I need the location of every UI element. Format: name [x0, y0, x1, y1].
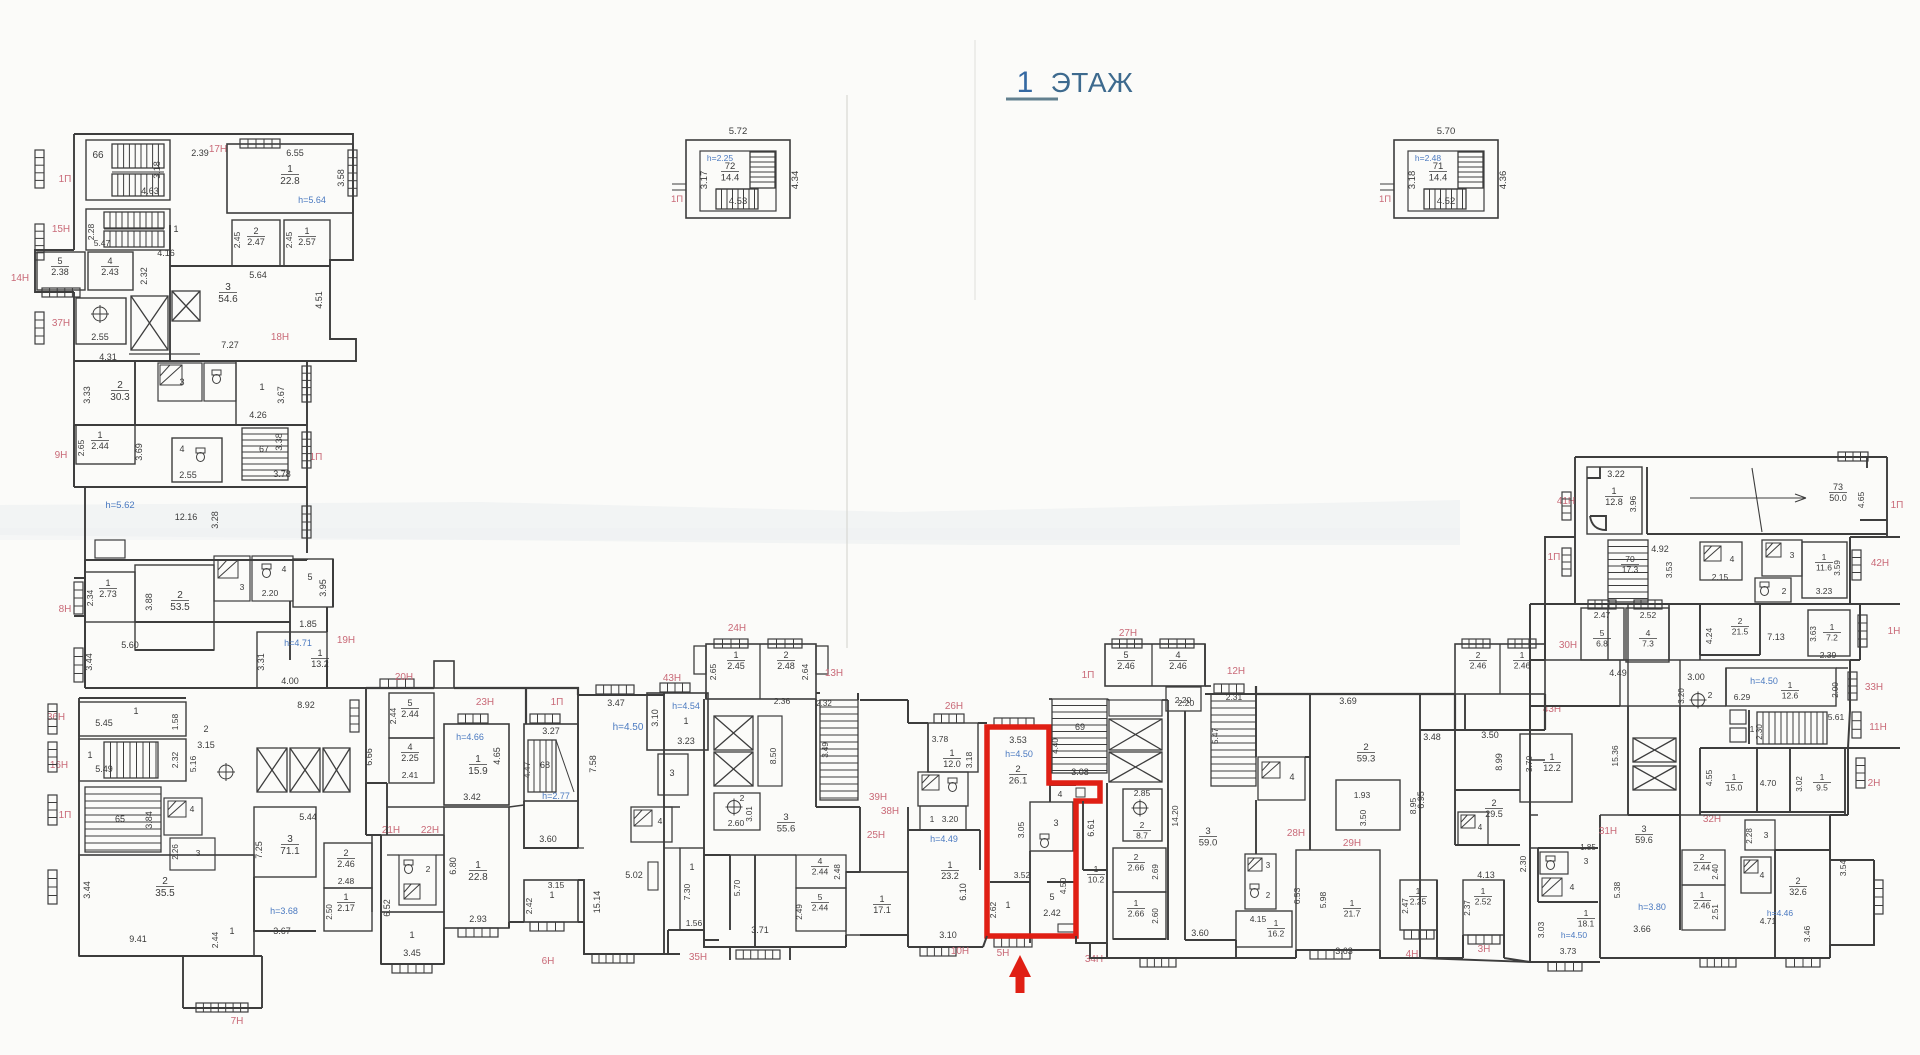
svg-text:17Н: 17Н [209, 144, 227, 155]
svg-text:1: 1 [1520, 650, 1525, 660]
svg-text:23Н: 23Н [476, 697, 494, 708]
svg-text:73: 73 [1833, 482, 1843, 492]
svg-text:16.2: 16.2 [1268, 929, 1285, 939]
svg-text:3: 3 [1266, 861, 1271, 870]
svg-text:2.44: 2.44 [812, 903, 829, 913]
svg-text:4: 4 [1646, 628, 1651, 638]
svg-text:6Н: 6Н [542, 956, 555, 967]
svg-text:3.28: 3.28 [210, 511, 220, 529]
svg-text:29Н: 29Н [1343, 838, 1361, 849]
svg-text:5.47: 5.47 [1210, 727, 1220, 744]
svg-text:1.85: 1.85 [1580, 843, 1596, 852]
svg-text:3: 3 [225, 282, 231, 293]
svg-text:h=3.68: h=3.68 [270, 906, 298, 916]
svg-text:5.45: 5.45 [95, 718, 113, 728]
svg-text:1: 1 [343, 892, 348, 902]
svg-text:h=4.66: h=4.66 [456, 732, 484, 742]
svg-text:5.64: 5.64 [249, 270, 267, 280]
svg-text:4: 4 [179, 444, 184, 454]
svg-text:2: 2 [426, 864, 431, 874]
svg-text:1: 1 [133, 706, 138, 716]
svg-text:1: 1 [1274, 918, 1279, 928]
svg-text:17.3: 17.3 [1622, 565, 1639, 575]
svg-text:3: 3 [240, 582, 245, 592]
svg-text:2.34: 2.34 [85, 589, 95, 606]
svg-text:4.65: 4.65 [1856, 491, 1866, 508]
svg-text:1: 1 [1134, 898, 1139, 908]
svg-text:3.20: 3.20 [1677, 688, 1686, 704]
svg-text:18Н: 18Н [271, 332, 289, 343]
svg-text:15.14: 15.14 [592, 891, 602, 914]
svg-text:3.23: 3.23 [1816, 586, 1833, 596]
svg-text:2.85: 2.85 [1134, 788, 1151, 798]
svg-text:13Н: 13Н [825, 668, 843, 679]
svg-text:3.47: 3.47 [607, 698, 625, 708]
svg-text:5: 5 [1600, 628, 1605, 638]
svg-text:h=3.80: h=3.80 [1638, 902, 1666, 912]
svg-text:2.25: 2.25 [401, 753, 419, 763]
svg-text:3.44: 3.44 [82, 881, 92, 899]
svg-text:4: 4 [1478, 823, 1483, 832]
svg-text:3.78: 3.78 [932, 734, 949, 744]
svg-text:2.20: 2.20 [262, 588, 279, 598]
svg-text:55.6: 55.6 [777, 824, 796, 835]
svg-text:2.38: 2.38 [51, 267, 69, 277]
svg-text:2.32: 2.32 [139, 267, 149, 285]
svg-text:1: 1 [1005, 900, 1010, 910]
svg-text:2.39: 2.39 [191, 148, 209, 158]
svg-text:1: 1 [173, 224, 178, 234]
svg-text:2.50: 2.50 [325, 904, 334, 920]
svg-text:3.52: 3.52 [1014, 870, 1031, 880]
svg-text:8.50: 8.50 [768, 747, 778, 764]
svg-text:36Н: 36Н [47, 712, 65, 723]
svg-text:2.44: 2.44 [210, 931, 220, 948]
svg-text:2.46: 2.46 [1470, 661, 1487, 671]
svg-text:7.30: 7.30 [682, 883, 692, 900]
svg-text:3.84: 3.84 [144, 811, 154, 829]
svg-text:4: 4 [1289, 772, 1294, 782]
svg-text:4: 4 [1730, 554, 1735, 564]
svg-text:42Н: 42Н [1871, 558, 1889, 569]
svg-text:2.32: 2.32 [816, 699, 832, 708]
svg-text:2: 2 [117, 380, 123, 391]
svg-text:2: 2 [1140, 820, 1145, 830]
svg-text:67: 67 [259, 444, 269, 454]
svg-text:12.2: 12.2 [1543, 763, 1561, 773]
svg-text:4.52: 4.52 [1437, 196, 1456, 207]
svg-text:1: 1 [879, 894, 884, 904]
svg-text:1Н: 1Н [1888, 626, 1901, 637]
svg-text:2: 2 [1738, 616, 1743, 626]
svg-text:3.66: 3.66 [1633, 924, 1651, 934]
svg-text:5.38: 5.38 [1612, 881, 1622, 898]
svg-text:2.47: 2.47 [247, 237, 265, 247]
svg-text:12.8: 12.8 [1605, 497, 1623, 507]
svg-text:4: 4 [107, 256, 112, 266]
svg-text:8.99: 8.99 [1494, 753, 1504, 771]
svg-text:6.66: 6.66 [364, 748, 374, 766]
svg-text:3.42: 3.42 [463, 792, 481, 802]
svg-text:3: 3 [1053, 818, 1058, 828]
svg-text:72: 72 [725, 161, 736, 172]
svg-text:h=4.71: h=4.71 [284, 638, 312, 648]
svg-text:1: 1 [1017, 66, 1034, 99]
svg-text:1: 1 [105, 578, 110, 588]
svg-text:1.93: 1.93 [1354, 790, 1371, 800]
svg-text:4.65: 4.65 [492, 747, 502, 765]
svg-text:3.50: 3.50 [1358, 809, 1368, 826]
svg-text:h=4.54: h=4.54 [672, 701, 700, 711]
svg-text:2.48: 2.48 [777, 661, 795, 671]
svg-text:3.78: 3.78 [273, 469, 291, 479]
svg-text:1П: 1П [1082, 670, 1095, 681]
svg-text:2.60: 2.60 [1151, 908, 1160, 924]
svg-text:43Н: 43Н [663, 673, 681, 684]
svg-text:12.16: 12.16 [175, 512, 198, 522]
svg-text:7.25: 7.25 [254, 841, 264, 859]
svg-text:2: 2 [162, 876, 168, 887]
svg-text:2.46: 2.46 [337, 859, 355, 869]
svg-text:11Н: 11Н [1869, 722, 1887, 733]
svg-text:3: 3 [1641, 824, 1646, 834]
svg-text:6.95: 6.95 [1416, 791, 1426, 809]
svg-text:5.70: 5.70 [732, 879, 742, 896]
svg-text:4: 4 [818, 856, 823, 866]
svg-text:3.96: 3.96 [1628, 495, 1638, 512]
svg-text:5.44: 5.44 [299, 812, 317, 822]
svg-text:2.28: 2.28 [1745, 828, 1754, 844]
svg-text:2.44: 2.44 [1694, 863, 1711, 873]
svg-text:1: 1 [304, 226, 309, 236]
svg-text:30.3: 30.3 [110, 392, 130, 403]
svg-text:27Н: 27Н [1119, 628, 1137, 639]
svg-text:33Н: 33Н [1865, 682, 1883, 693]
svg-text:5Н: 5Н [997, 948, 1010, 959]
svg-text:12.0: 12.0 [943, 759, 961, 769]
svg-text:7.2: 7.2 [1826, 633, 1838, 643]
svg-text:3: 3 [179, 377, 184, 387]
svg-text:4: 4 [1175, 650, 1180, 660]
svg-text:3.53: 3.53 [1009, 735, 1027, 745]
svg-text:22.8: 22.8 [468, 872, 488, 883]
svg-text:2: 2 [1708, 690, 1713, 700]
svg-text:6.10: 6.10 [958, 883, 968, 901]
svg-text:4.24: 4.24 [1704, 627, 1714, 644]
svg-text:3: 3 [669, 768, 674, 778]
svg-text:1: 1 [1830, 622, 1835, 632]
svg-text:3.49: 3.49 [821, 742, 830, 758]
svg-text:2.42: 2.42 [1043, 908, 1061, 918]
svg-text:1: 1 [317, 648, 322, 658]
svg-text:3.60: 3.60 [539, 834, 557, 844]
svg-text:3.73: 3.73 [1560, 946, 1577, 956]
svg-text:1: 1 [1750, 724, 1755, 734]
svg-text:66: 66 [92, 150, 104, 161]
svg-text:3.18: 3.18 [152, 161, 162, 179]
svg-text:2: 2 [253, 226, 258, 236]
svg-text:6.8: 6.8 [1596, 639, 1608, 649]
svg-text:4.70: 4.70 [1760, 778, 1777, 788]
svg-text:1: 1 [1094, 864, 1099, 874]
svg-text:3.10: 3.10 [939, 930, 957, 940]
svg-text:2.65: 2.65 [708, 663, 718, 680]
svg-text:2.55: 2.55 [179, 470, 197, 480]
svg-text:ЭТАЖ: ЭТАЖ [1051, 67, 1134, 98]
svg-text:2.46: 2.46 [1169, 661, 1187, 671]
svg-text:1.85: 1.85 [299, 619, 317, 629]
svg-text:1П: 1П [59, 174, 72, 185]
svg-text:7.13: 7.13 [1767, 632, 1785, 642]
svg-text:3: 3 [196, 848, 201, 858]
svg-text:2.65: 2.65 [76, 439, 86, 456]
svg-text:35Н: 35Н [689, 952, 707, 963]
svg-text:2.52: 2.52 [1640, 610, 1657, 620]
svg-text:4.53: 4.53 [729, 196, 748, 207]
svg-text:2.45: 2.45 [232, 231, 242, 248]
svg-text:4: 4 [1760, 870, 1765, 880]
svg-text:4.71: 4.71 [1760, 916, 1777, 926]
svg-text:15.9: 15.9 [468, 766, 488, 777]
svg-text:17.1: 17.1 [873, 905, 891, 915]
svg-text:38Н: 38Н [881, 806, 899, 817]
svg-text:5.60: 5.60 [121, 640, 139, 650]
svg-text:3: 3 [783, 812, 788, 823]
svg-text:3.60: 3.60 [1191, 928, 1209, 938]
svg-text:h=2.77: h=2.77 [542, 791, 570, 801]
svg-text:2.44: 2.44 [401, 709, 419, 719]
svg-text:1: 1 [1549, 752, 1554, 762]
svg-text:8.7: 8.7 [1136, 831, 1148, 841]
svg-text:32.6: 32.6 [1789, 887, 1807, 897]
svg-text:1: 1 [475, 860, 481, 871]
svg-text:59.0: 59.0 [1199, 838, 1218, 849]
svg-text:2: 2 [1476, 650, 1481, 660]
svg-text:1П: 1П [671, 194, 683, 205]
svg-text:3.18: 3.18 [964, 751, 974, 768]
svg-text:9Н: 9Н [55, 450, 68, 461]
svg-text:2.15: 2.15 [1712, 572, 1729, 582]
svg-text:4: 4 [658, 816, 663, 826]
svg-text:25Н: 25Н [867, 830, 885, 841]
svg-text:2.57: 2.57 [298, 237, 316, 247]
svg-text:2.42: 2.42 [524, 897, 534, 914]
svg-text:3.44: 3.44 [84, 653, 94, 671]
svg-text:1П: 1П [1548, 552, 1561, 563]
svg-text:1П: 1П [1891, 500, 1904, 511]
svg-text:26Н: 26Н [945, 701, 963, 712]
svg-text:3.69: 3.69 [1339, 696, 1357, 706]
svg-text:3: 3 [287, 834, 293, 845]
svg-text:h=4.50: h=4.50 [613, 722, 644, 733]
svg-text:15Н: 15Н [52, 224, 70, 235]
svg-text:5.02: 5.02 [625, 870, 643, 880]
svg-text:2.41: 2.41 [402, 770, 419, 780]
svg-text:1.58: 1.58 [170, 713, 180, 730]
svg-text:5.72: 5.72 [729, 126, 748, 137]
svg-text:2.00: 2.00 [1831, 682, 1840, 698]
svg-text:59.3: 59.3 [1357, 754, 1376, 765]
svg-text:2.26: 2.26 [171, 844, 180, 860]
svg-text:7Н: 7Н [231, 1016, 244, 1027]
svg-text:8Н: 8Н [59, 604, 72, 615]
svg-text:2: 2 [1700, 852, 1705, 862]
svg-text:4.50: 4.50 [1058, 877, 1068, 894]
svg-text:50.0: 50.0 [1829, 493, 1847, 503]
svg-text:2.52: 2.52 [1475, 897, 1492, 907]
svg-text:5: 5 [407, 698, 412, 708]
svg-text:2.48: 2.48 [338, 876, 355, 886]
svg-text:h=4.50: h=4.50 [1561, 930, 1588, 940]
svg-text:53.5: 53.5 [170, 602, 190, 613]
svg-text:1: 1 [1788, 680, 1793, 690]
svg-text:1: 1 [287, 164, 293, 175]
svg-text:1П: 1П [59, 810, 72, 821]
svg-text:4.40: 4.40 [1051, 738, 1060, 754]
svg-text:5.49: 5.49 [95, 764, 113, 774]
svg-text:71.1: 71.1 [280, 846, 300, 857]
svg-text:2.51: 2.51 [1711, 904, 1720, 920]
svg-text:68: 68 [540, 760, 550, 770]
svg-text:2.36: 2.36 [774, 696, 791, 706]
svg-text:2: 2 [1363, 742, 1368, 753]
svg-text:21.5: 21.5 [1732, 627, 1749, 637]
svg-text:5.70: 5.70 [1437, 126, 1456, 137]
svg-text:3.45: 3.45 [403, 948, 421, 958]
svg-text:3.27: 3.27 [542, 726, 560, 736]
svg-text:2.43: 2.43 [101, 267, 119, 277]
svg-text:6.29: 6.29 [1734, 692, 1751, 702]
svg-text:4: 4 [282, 564, 287, 574]
svg-text:1: 1 [949, 748, 954, 758]
svg-text:35.5: 35.5 [155, 888, 175, 899]
svg-text:2.55: 2.55 [91, 332, 109, 342]
svg-text:1: 1 [1822, 552, 1827, 562]
svg-text:2.45: 2.45 [727, 661, 745, 671]
svg-text:12Н: 12Н [1227, 666, 1245, 677]
svg-text:2: 2 [177, 590, 183, 601]
svg-text:3.95: 3.95 [318, 579, 328, 597]
svg-text:2: 2 [1782, 586, 1787, 596]
svg-text:41Н: 41Н [1557, 496, 1575, 507]
svg-text:1: 1 [97, 430, 102, 440]
svg-text:39Н: 39Н [869, 792, 887, 803]
svg-text:3.17: 3.17 [699, 171, 710, 190]
svg-text:1: 1 [409, 930, 414, 941]
svg-text:3.53: 3.53 [1664, 561, 1674, 578]
svg-text:7.58: 7.58 [588, 755, 598, 773]
svg-text:11.6: 11.6 [1816, 563, 1832, 573]
svg-text:2: 2 [1491, 798, 1496, 808]
svg-text:5: 5 [818, 892, 823, 902]
svg-text:5: 5 [307, 572, 312, 582]
svg-text:4: 4 [190, 804, 195, 814]
svg-text:2.46: 2.46 [1514, 661, 1531, 671]
svg-text:4.63: 4.63 [141, 186, 159, 196]
svg-text:3.38: 3.38 [274, 433, 284, 451]
svg-text:2: 2 [343, 848, 348, 858]
svg-text:2: 2 [1015, 764, 1020, 775]
svg-text:1: 1 [947, 860, 952, 870]
svg-text:1: 1 [1481, 886, 1486, 896]
svg-text:3.69: 3.69 [134, 443, 144, 461]
svg-text:3Н: 3Н [1478, 944, 1491, 955]
svg-text:3.00: 3.00 [1687, 672, 1705, 682]
svg-text:2: 2 [1266, 891, 1271, 900]
svg-text:2.44: 2.44 [812, 867, 829, 877]
svg-text:3.02: 3.02 [1795, 776, 1804, 792]
svg-text:h=4.50: h=4.50 [1750, 676, 1778, 686]
svg-text:1П: 1П [1379, 194, 1391, 205]
svg-text:1: 1 [1416, 886, 1421, 896]
svg-text:4.92: 4.92 [1651, 544, 1669, 554]
svg-text:3.48: 3.48 [1423, 732, 1441, 742]
svg-text:14Н: 14Н [11, 273, 29, 284]
svg-text:2.37: 2.37 [1463, 900, 1472, 916]
svg-text:6.80: 6.80 [448, 857, 458, 875]
svg-text:4.55: 4.55 [1704, 769, 1714, 786]
svg-text:4: 4 [407, 742, 412, 752]
svg-text:3: 3 [1205, 826, 1210, 837]
svg-text:3.88: 3.88 [144, 593, 154, 611]
svg-text:2.32: 2.32 [170, 751, 180, 768]
svg-text:1: 1 [87, 750, 92, 760]
svg-text:2: 2 [1795, 876, 1800, 886]
svg-text:4: 4 [1058, 789, 1063, 799]
svg-text:3.63: 3.63 [1809, 626, 1818, 642]
svg-text:1: 1 [475, 754, 481, 765]
svg-text:15.36: 15.36 [1610, 745, 1620, 767]
svg-text:2.66: 2.66 [1128, 909, 1145, 919]
svg-text:1: 1 [1732, 772, 1737, 782]
svg-text:22.8: 22.8 [280, 176, 300, 187]
svg-text:14.4: 14.4 [721, 173, 740, 184]
svg-text:12.6: 12.6 [1782, 691, 1799, 701]
svg-text:3.22: 3.22 [1607, 469, 1625, 479]
svg-text:1: 1 [259, 382, 264, 393]
svg-text:31Н: 31Н [1599, 826, 1617, 837]
svg-text:1: 1 [1584, 908, 1589, 918]
svg-text:18.1: 18.1 [1578, 919, 1595, 929]
svg-text:2.44: 2.44 [91, 441, 109, 451]
svg-text:2.45: 2.45 [284, 231, 294, 248]
svg-text:4.00: 4.00 [281, 676, 299, 686]
svg-text:5: 5 [1049, 892, 1054, 902]
svg-text:7.27: 7.27 [221, 340, 239, 350]
svg-text:54.6: 54.6 [218, 294, 238, 305]
svg-text:5.47: 5.47 [94, 238, 111, 248]
svg-text:3.46: 3.46 [1802, 925, 1812, 942]
svg-text:4.47: 4.47 [522, 761, 532, 778]
svg-text:2.25: 2.25 [1410, 897, 1427, 907]
svg-text:2.66: 2.66 [1128, 863, 1145, 873]
svg-text:10Н: 10Н [951, 946, 969, 957]
svg-text:2.93: 2.93 [469, 914, 487, 924]
svg-text:71: 71 [1433, 161, 1444, 172]
svg-text:1: 1 [1820, 772, 1825, 782]
svg-text:1: 1 [1611, 486, 1616, 496]
svg-text:3.18: 3.18 [1407, 171, 1418, 190]
svg-text:2.17: 2.17 [337, 903, 355, 913]
svg-text:14.20: 14.20 [1170, 805, 1180, 827]
svg-text:20Н: 20Н [395, 672, 413, 683]
svg-text:3.67: 3.67 [276, 386, 286, 404]
svg-text:28Н: 28Н [1287, 828, 1305, 839]
svg-text:65: 65 [115, 814, 125, 824]
svg-text:1: 1 [1350, 898, 1355, 908]
svg-text:4.13: 4.13 [1477, 870, 1495, 880]
svg-text:6.52: 6.52 [382, 899, 392, 917]
